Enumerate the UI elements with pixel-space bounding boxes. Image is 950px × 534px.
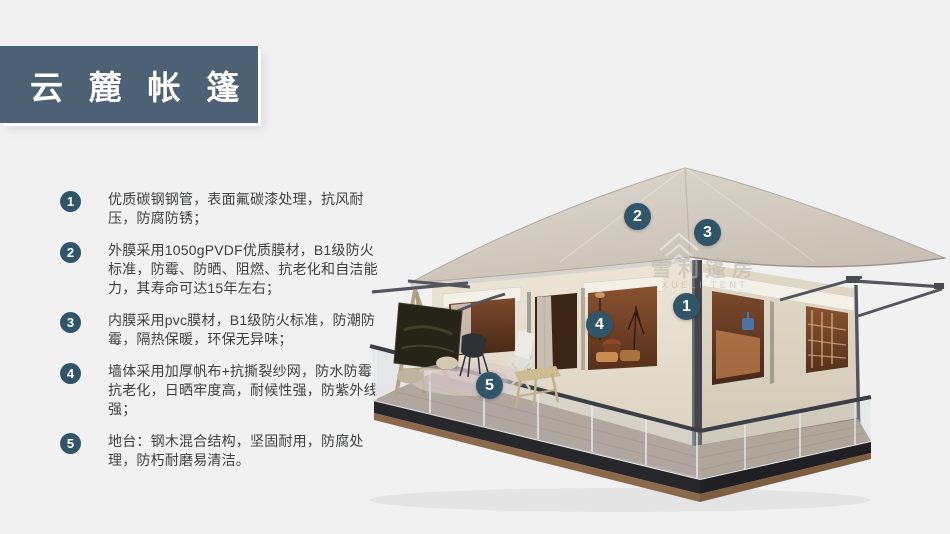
tent-illustration: 雪利篷房 XUELI TENT — [0, 0, 950, 534]
watermark-en: XUELI TENT — [662, 280, 749, 290]
infographic-page: 云麓帐篷 1 优质碳钢钢管，表面氟碳漆处理，抗风耐压，防腐防锈； 2 外膜采用1… — [0, 0, 950, 534]
callout-marker-2: 2 — [624, 203, 651, 230]
callout-marker-1: 1 — [673, 293, 700, 320]
watermark-cn: 雪利篷房 — [651, 257, 759, 281]
callout-marker-3: 3 — [694, 219, 721, 246]
callout-marker-5: 5 — [476, 372, 503, 399]
callout-marker-4: 4 — [586, 311, 613, 338]
